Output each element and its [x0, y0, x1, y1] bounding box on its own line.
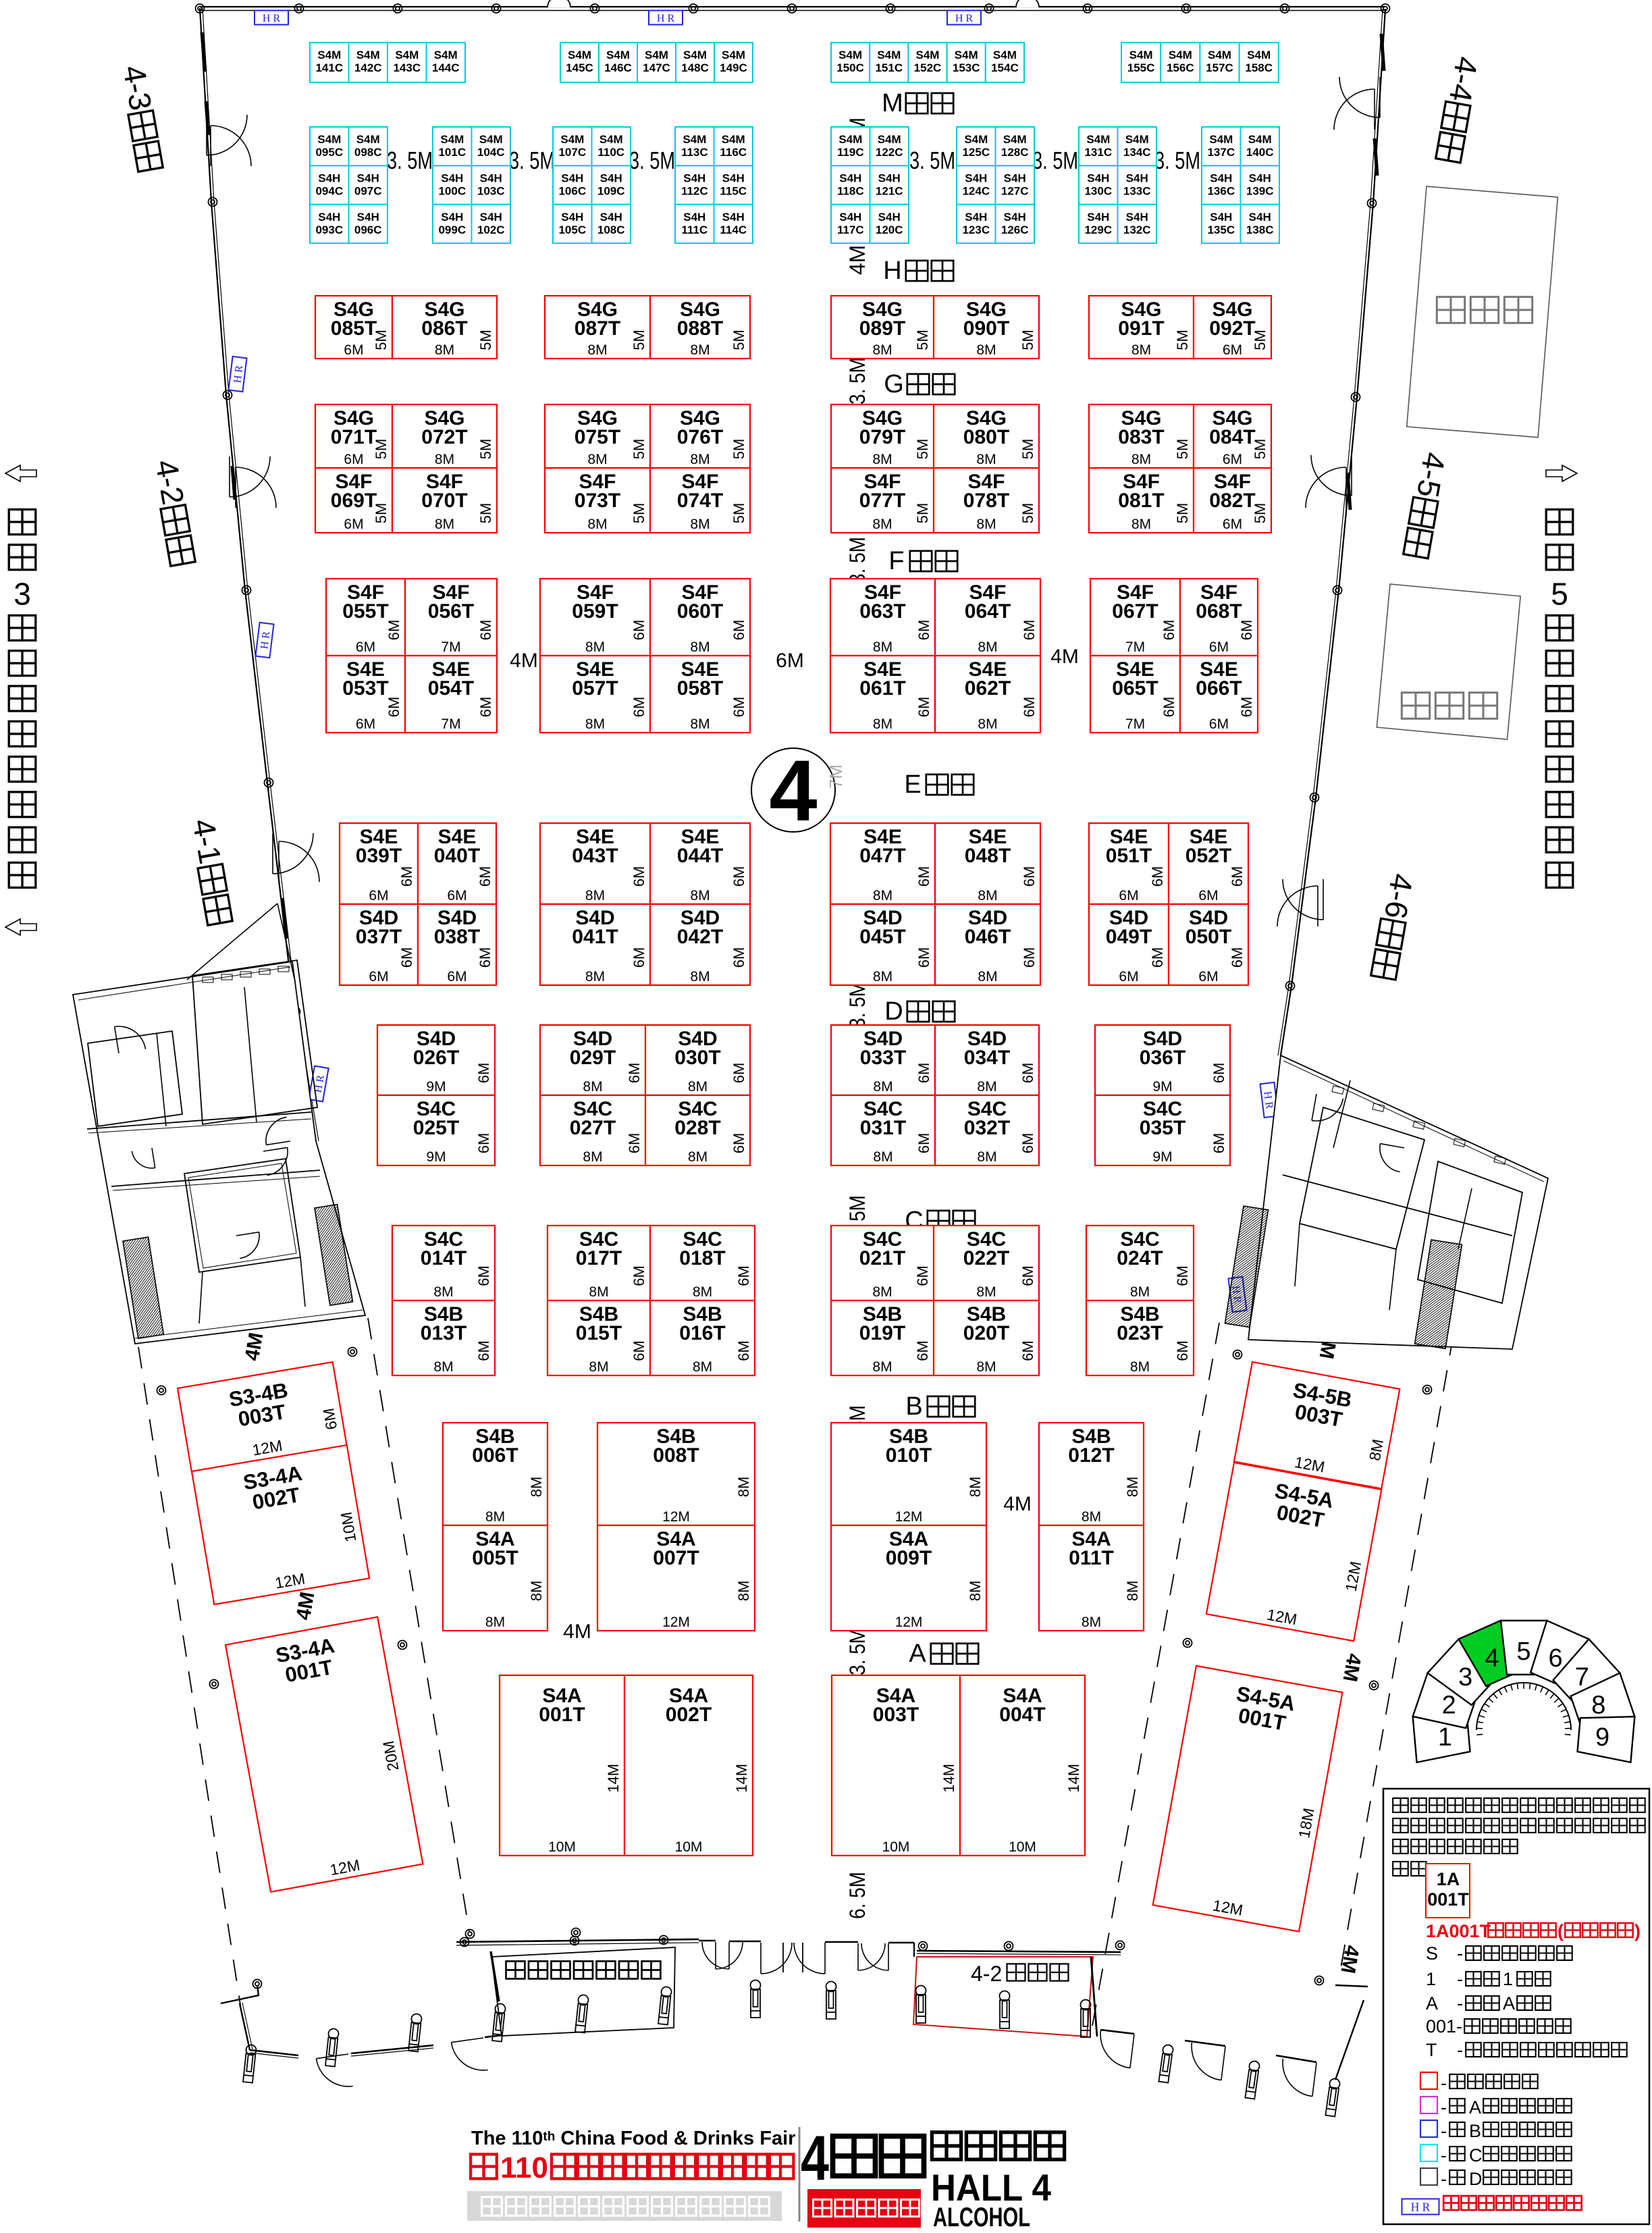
svg-text:3. 5M: 3. 5M: [909, 147, 955, 174]
svg-text:001T: 001T: [1427, 1889, 1469, 1910]
svg-text:095C: 095C: [315, 146, 343, 159]
svg-text:042T: 042T: [677, 926, 723, 948]
svg-text:S4H: S4H: [1126, 172, 1148, 184]
svg-text:6M: 6M: [914, 1265, 931, 1286]
svg-text:6: 6: [1549, 1644, 1563, 1673]
svg-text:8M: 8M: [485, 1509, 505, 1525]
svg-text:-: -: [1457, 1943, 1463, 1964]
svg-text:020T: 020T: [963, 1322, 1009, 1344]
svg-text:6M: 6M: [398, 947, 415, 968]
svg-text:S4M: S4M: [440, 133, 464, 146]
svg-text:048T: 048T: [965, 845, 1011, 867]
svg-text:8M: 8M: [585, 716, 605, 732]
svg-text:018T: 018T: [679, 1247, 725, 1269]
svg-text:S4M: S4M: [395, 49, 419, 61]
svg-text:5M: 5M: [1174, 439, 1191, 460]
svg-text:067T: 067T: [1112, 600, 1158, 623]
svg-text:S4M: S4M: [599, 133, 623, 146]
svg-text:8M: 8M: [735, 1477, 752, 1498]
svg-text:6M: 6M: [1021, 620, 1038, 641]
svg-text:S4H: S4H: [839, 172, 861, 184]
svg-text:S4H: S4H: [600, 211, 622, 224]
svg-text:S4M: S4M: [479, 133, 503, 146]
svg-text:8M: 8M: [690, 888, 710, 903]
svg-text:043T: 043T: [572, 845, 618, 867]
svg-text:S4H: S4H: [441, 211, 463, 224]
svg-text:5M: 5M: [373, 330, 390, 350]
svg-text:A: A: [1469, 2097, 1481, 2118]
svg-text:6M: 6M: [914, 1340, 931, 1361]
svg-text:8M: 8M: [690, 342, 710, 358]
svg-text:S4H: S4H: [1087, 172, 1109, 184]
svg-text:3. 5M: 3. 5M: [845, 537, 870, 584]
svg-text:138C: 138C: [1246, 224, 1274, 236]
svg-text:8M: 8M: [1131, 517, 1151, 532]
svg-text:B: B: [905, 1392, 922, 1421]
svg-text:6M: 6M: [1209, 716, 1229, 732]
svg-text:S4M: S4M: [838, 133, 862, 146]
svg-text:S4H: S4H: [722, 172, 745, 184]
svg-text:114C: 114C: [720, 224, 747, 236]
svg-text:8M: 8M: [978, 969, 997, 984]
svg-text:034T: 034T: [964, 1047, 1010, 1069]
svg-text:010T: 010T: [886, 1444, 932, 1467]
svg-text:143C: 143C: [393, 61, 421, 74]
svg-text:4M: 4M: [1003, 1493, 1032, 1515]
svg-text:6M: 6M: [1238, 620, 1255, 641]
svg-text:107C: 107C: [558, 146, 586, 159]
svg-text:070T: 070T: [421, 490, 467, 512]
svg-text:6M: 6M: [344, 342, 363, 358]
svg-text:6M: 6M: [730, 866, 747, 887]
svg-text:037T: 037T: [356, 926, 402, 948]
svg-text:6M: 6M: [915, 1063, 932, 1084]
svg-text:5: 5: [1516, 1637, 1530, 1666]
svg-text:028T: 028T: [674, 1117, 720, 1139]
svg-text:8M: 8M: [587, 452, 607, 467]
svg-text:6M: 6M: [475, 1265, 492, 1286]
svg-text:117C: 117C: [837, 224, 864, 236]
svg-text:8M: 8M: [688, 1079, 708, 1095]
svg-text:6M: 6M: [730, 947, 747, 968]
svg-text:6M: 6M: [631, 866, 647, 887]
svg-text:12M: 12M: [662, 1509, 690, 1525]
svg-text:8M: 8M: [873, 639, 892, 655]
svg-text:4M: 4M: [510, 650, 538, 672]
svg-text:3: 3: [14, 577, 31, 612]
svg-text:134C: 134C: [1123, 146, 1151, 159]
svg-text:6M: 6M: [1149, 947, 1166, 968]
svg-text:-: -: [1457, 1993, 1463, 2014]
svg-text:071T: 071T: [331, 426, 377, 448]
svg-text:6M: 6M: [1223, 517, 1242, 532]
svg-text:075T: 075T: [575, 426, 620, 448]
svg-text:D: D: [1469, 2169, 1483, 2189]
svg-text:027T: 027T: [570, 1117, 616, 1139]
svg-text:1: 1: [1503, 1969, 1513, 1989]
svg-text:S4H: S4H: [1249, 211, 1271, 224]
svg-text:106C: 106C: [558, 184, 586, 197]
svg-text:8M: 8M: [967, 1477, 984, 1498]
svg-text:8M: 8M: [873, 716, 892, 732]
svg-text:5: 5: [1551, 577, 1568, 612]
svg-text:8: 8: [1591, 1691, 1605, 1719]
svg-text:156C: 156C: [1167, 61, 1194, 74]
svg-text:S4M: S4M: [1129, 49, 1153, 61]
svg-text:10M: 10M: [882, 1839, 910, 1855]
svg-text:S4H: S4H: [1087, 211, 1109, 224]
svg-text:4: 4: [801, 2122, 829, 2193]
svg-text:S4M: S4M: [356, 49, 380, 61]
svg-text:10M: 10M: [548, 1839, 576, 1855]
svg-text:8M: 8M: [435, 342, 454, 358]
svg-text:001-: 001-: [1426, 2016, 1462, 2037]
svg-text:S4H: S4H: [318, 172, 340, 184]
svg-text:051T: 051T: [1106, 845, 1152, 867]
svg-text:6M: 6M: [447, 969, 467, 984]
svg-text:S4H: S4H: [441, 172, 463, 184]
svg-text:8M: 8M: [589, 1359, 608, 1375]
svg-text:096C: 096C: [354, 224, 382, 236]
svg-text:155C: 155C: [1127, 61, 1155, 74]
svg-text:6M: 6M: [631, 620, 647, 641]
svg-text:S4H: S4H: [878, 172, 901, 184]
svg-text:9: 9: [1595, 1723, 1609, 1752]
svg-text:8M: 8M: [585, 888, 605, 903]
svg-text:6M: 6M: [356, 716, 375, 732]
svg-text:022T: 022T: [963, 1247, 1009, 1269]
svg-text:8M: 8M: [583, 1079, 602, 1095]
svg-text:6M: 6M: [356, 639, 375, 655]
svg-text:8M: 8M: [873, 1149, 892, 1165]
svg-text:5M: 5M: [1252, 330, 1269, 350]
svg-text:ALCOHOL: ALCOHOL: [933, 2203, 1030, 2232]
svg-text:054T: 054T: [428, 677, 474, 700]
svg-text:8M: 8M: [1124, 1581, 1141, 1602]
svg-text:6M: 6M: [385, 697, 402, 718]
svg-text:8M: 8M: [978, 716, 997, 732]
svg-text:013T: 013T: [421, 1322, 467, 1344]
svg-text:014T: 014T: [421, 1247, 467, 1269]
svg-text:6M: 6M: [344, 517, 363, 532]
svg-text:035T: 035T: [1140, 1117, 1185, 1139]
svg-text:049T: 049T: [1106, 926, 1152, 948]
svg-text:14M: 14M: [733, 1764, 750, 1793]
svg-text:094C: 094C: [315, 184, 343, 197]
svg-text:G: G: [884, 370, 904, 398]
svg-text:H R: H R: [1262, 1091, 1275, 1109]
svg-text:8M: 8M: [585, 639, 605, 655]
svg-text:040T: 040T: [434, 845, 480, 867]
svg-text:011T: 011T: [1069, 1547, 1114, 1569]
svg-text:130C: 130C: [1084, 184, 1112, 197]
svg-text:039T: 039T: [356, 845, 402, 867]
svg-text:086T: 086T: [421, 317, 467, 340]
svg-text:10M: 10M: [675, 1839, 703, 1855]
svg-text:S4M: S4M: [683, 133, 706, 146]
svg-text:-: -: [1457, 1969, 1463, 1989]
svg-text:5M: 5M: [730, 503, 747, 524]
svg-text:057T: 057T: [572, 677, 618, 700]
svg-text:S4H: S4H: [1249, 172, 1271, 184]
svg-text:8M: 8M: [1082, 1509, 1101, 1525]
svg-text:012T: 012T: [1068, 1444, 1114, 1467]
svg-text:6M: 6M: [915, 697, 932, 718]
svg-text:093C: 093C: [315, 224, 343, 236]
svg-text:S4H: S4H: [1210, 172, 1232, 184]
svg-text:125C: 125C: [962, 146, 990, 159]
svg-text:14M: 14M: [940, 1764, 957, 1793]
svg-text:1: 1: [1426, 1969, 1436, 1989]
svg-text:1A001T: 1A001T: [1426, 1921, 1491, 1941]
svg-text:8M: 8M: [873, 888, 892, 903]
svg-text:8M: 8M: [978, 639, 997, 655]
svg-text:6M: 6M: [1174, 1265, 1191, 1286]
svg-text:S4M: S4M: [317, 133, 341, 146]
svg-text:068T: 068T: [1196, 600, 1242, 623]
svg-text:F: F: [888, 547, 904, 575]
svg-text:3. 5M: 3. 5M: [1032, 147, 1078, 174]
svg-text:S4M: S4M: [317, 49, 341, 61]
svg-text:119C: 119C: [837, 146, 864, 159]
svg-text:064T: 064T: [965, 600, 1011, 623]
svg-text:059T: 059T: [572, 600, 618, 623]
svg-text:S4H: S4H: [357, 172, 379, 184]
svg-text:6M: 6M: [1021, 866, 1038, 887]
svg-text:S4M: S4M: [1086, 133, 1110, 146]
svg-text:6M: 6M: [1021, 697, 1038, 718]
svg-text:099C: 099C: [438, 224, 466, 236]
svg-text:006T: 006T: [472, 1444, 518, 1467]
svg-text:6M: 6M: [626, 1133, 643, 1154]
svg-text:6M: 6M: [1223, 452, 1242, 467]
svg-text:3. 5M: 3. 5M: [629, 147, 675, 174]
svg-text:S4H: S4H: [1210, 211, 1232, 224]
svg-text:4M: 4M: [563, 1621, 591, 1643]
svg-text:6M: 6M: [319, 1407, 340, 1431]
svg-text:5M: 5M: [1019, 439, 1036, 460]
svg-text:6M: 6M: [385, 620, 402, 641]
svg-text:12M: 12M: [895, 1614, 923, 1630]
svg-text:8M: 8M: [585, 969, 605, 984]
svg-text:019T: 019T: [859, 1322, 905, 1344]
svg-text:016T: 016T: [679, 1322, 725, 1344]
svg-text:6M: 6M: [475, 1133, 492, 1154]
svg-text:8M: 8M: [977, 1149, 996, 1165]
svg-text:S4H: S4H: [1126, 211, 1148, 224]
svg-text:060T: 060T: [677, 600, 723, 623]
svg-text:5M: 5M: [477, 330, 494, 350]
svg-text:S4M: S4M: [606, 49, 630, 61]
svg-text:S4M: S4M: [1169, 49, 1192, 61]
svg-text:9M: 9M: [1152, 1149, 1172, 1165]
svg-text:135C: 135C: [1207, 224, 1235, 236]
svg-text:8M: 8M: [872, 342, 892, 358]
svg-text:127C: 127C: [1001, 184, 1029, 197]
svg-text:5M: 5M: [730, 439, 747, 460]
svg-text:072T: 072T: [421, 426, 467, 448]
svg-text:076T: 076T: [677, 426, 723, 448]
svg-text:6M: 6M: [1019, 1265, 1036, 1286]
svg-text:S4H: S4H: [357, 211, 379, 224]
svg-text:7M: 7M: [1125, 639, 1145, 655]
svg-text:S4M: S4M: [560, 133, 584, 146]
svg-text:1: 1: [1438, 1723, 1452, 1752]
svg-text:S4M: S4M: [1003, 133, 1027, 146]
svg-text:144C: 144C: [432, 61, 460, 74]
svg-text:053T: 053T: [342, 677, 388, 700]
svg-text:056T: 056T: [428, 600, 474, 623]
svg-text:S4M: S4M: [683, 49, 707, 61]
svg-text:5M: 5M: [373, 439, 390, 460]
svg-text:100C: 100C: [438, 184, 466, 197]
svg-text:080T: 080T: [963, 426, 1009, 448]
svg-text:079T: 079T: [859, 426, 905, 448]
svg-text:147C: 147C: [643, 61, 670, 74]
svg-text:8M: 8M: [976, 342, 996, 358]
svg-text:044T: 044T: [677, 845, 723, 867]
svg-text:8M: 8M: [1131, 342, 1151, 358]
svg-text:8M: 8M: [872, 517, 892, 532]
svg-text:3. 5M: 3. 5M: [509, 147, 555, 174]
svg-text:A: A: [909, 1639, 926, 1668]
svg-text:S4H: S4H: [722, 211, 745, 224]
svg-text:-: -: [1441, 2145, 1447, 2165]
svg-text:065T: 065T: [1112, 677, 1158, 700]
svg-text:088T: 088T: [677, 317, 723, 340]
svg-text:14M: 14M: [1065, 1764, 1082, 1793]
svg-text:113C: 113C: [681, 146, 708, 159]
svg-text:5M: 5M: [1019, 503, 1036, 524]
svg-text:8M: 8M: [528, 1477, 545, 1498]
svg-text:8M: 8M: [872, 452, 892, 467]
svg-text:092T: 092T: [1209, 317, 1255, 340]
svg-text:115C: 115C: [720, 184, 747, 197]
svg-text:5M: 5M: [1174, 503, 1191, 524]
svg-text:7M: 7M: [441, 639, 460, 655]
svg-text:1A: 1A: [1437, 1869, 1460, 1889]
svg-text:8M: 8M: [690, 517, 710, 532]
svg-text:6M: 6M: [369, 969, 388, 984]
svg-text:S4H: S4H: [965, 211, 987, 224]
svg-text:-: -: [1441, 2097, 1447, 2118]
svg-text:5M: 5M: [1252, 439, 1269, 460]
svg-text:H R: H R: [1411, 2200, 1431, 2213]
svg-text:108C: 108C: [597, 224, 625, 236]
svg-text:-: -: [1457, 2040, 1463, 2060]
svg-text:5M: 5M: [477, 503, 494, 524]
svg-text:B: B: [1469, 2121, 1481, 2141]
svg-text:8M: 8M: [873, 1079, 892, 1095]
svg-text:6M: 6M: [447, 888, 467, 903]
svg-text:S4M: S4M: [356, 133, 380, 146]
svg-text:136C: 136C: [1207, 184, 1235, 197]
svg-text:084T: 084T: [1209, 426, 1255, 448]
svg-text:8M: 8M: [1130, 1359, 1150, 1375]
svg-text:6M: 6M: [1019, 1063, 1036, 1084]
svg-text:3. 5M: 3. 5M: [387, 147, 433, 174]
svg-text:8M: 8M: [688, 1149, 708, 1165]
svg-text:S4M: S4M: [1208, 49, 1231, 61]
svg-text:6M: 6M: [1210, 1133, 1227, 1154]
svg-text:142C: 142C: [354, 61, 382, 74]
svg-text:118C: 118C: [837, 184, 864, 197]
svg-text:6M: 6M: [626, 1063, 643, 1084]
svg-text:4: 4: [769, 743, 817, 839]
svg-text:6M: 6M: [730, 620, 747, 641]
svg-text:045T: 045T: [859, 926, 905, 948]
svg-text:8M: 8M: [1130, 1284, 1150, 1300]
svg-text:8M: 8M: [528, 1581, 545, 1602]
svg-text:050T: 050T: [1185, 926, 1231, 948]
svg-text:5M: 5M: [730, 330, 747, 350]
svg-text:124C: 124C: [962, 184, 990, 197]
svg-text:066T: 066T: [1196, 677, 1242, 700]
svg-text:6M: 6M: [1198, 969, 1218, 984]
svg-text:158C: 158C: [1245, 61, 1273, 74]
svg-text:8M: 8M: [976, 517, 996, 532]
svg-text:6M: 6M: [1229, 866, 1246, 887]
svg-text:8M: 8M: [693, 1359, 712, 1375]
svg-text:8M: 8M: [735, 1581, 752, 1602]
svg-text:152C: 152C: [914, 61, 942, 74]
svg-text:008T: 008T: [653, 1444, 699, 1467]
svg-text:146C: 146C: [604, 61, 632, 74]
svg-text:001T: 001T: [539, 1704, 585, 1726]
svg-text:3. 5M: 3. 5M: [845, 981, 870, 1028]
svg-text:5M: 5M: [914, 330, 931, 350]
svg-text:132C: 132C: [1123, 224, 1151, 236]
svg-text:H R: H R: [955, 13, 974, 24]
svg-text:8M: 8M: [977, 1079, 996, 1095]
svg-text:6M: 6M: [735, 1265, 752, 1286]
svg-text:8M: 8M: [433, 1284, 453, 1300]
svg-text:082T: 082T: [1209, 490, 1255, 512]
svg-text:121C: 121C: [876, 184, 903, 197]
svg-text:5M: 5M: [373, 503, 390, 524]
svg-text:10M: 10M: [1009, 1839, 1036, 1855]
svg-text:C: C: [1469, 2145, 1483, 2165]
svg-text:139C: 139C: [1246, 184, 1274, 197]
svg-text:8M: 8M: [976, 1359, 996, 1375]
svg-text:S4M: S4M: [993, 49, 1017, 61]
svg-text:9M: 9M: [1152, 1079, 1172, 1095]
svg-text:The 110th China Food & Drinks: The 110th China Food & Drinks Fair: [471, 2128, 795, 2149]
svg-text:120C: 120C: [876, 224, 903, 236]
svg-text:8M: 8M: [967, 1581, 984, 1602]
svg-text:4-2: 4-2: [971, 1962, 1002, 1986]
svg-text:6M: 6M: [1161, 620, 1177, 641]
svg-text:4M: 4M: [1050, 646, 1079, 668]
svg-text:6M: 6M: [915, 1133, 932, 1154]
svg-text:8M: 8M: [872, 1359, 892, 1375]
svg-text:S4H: S4H: [561, 172, 583, 184]
svg-text:S: S: [1426, 1943, 1438, 1964]
svg-text:8M: 8M: [872, 1284, 892, 1300]
svg-text:145C: 145C: [566, 61, 593, 74]
svg-text:6M: 6M: [1209, 639, 1229, 655]
svg-text:A: A: [1426, 1993, 1438, 2014]
svg-text:S4H: S4H: [1004, 172, 1026, 184]
svg-text:137C: 137C: [1207, 146, 1235, 159]
svg-text:S4H: S4H: [318, 211, 340, 224]
svg-text:023T: 023T: [1117, 1322, 1163, 1344]
svg-text:S4M: S4M: [916, 49, 940, 61]
svg-text:4: 4: [1485, 1644, 1499, 1673]
svg-text:085T: 085T: [331, 317, 377, 340]
svg-text:5M: 5M: [631, 503, 647, 524]
svg-text:041T: 041T: [572, 926, 618, 948]
